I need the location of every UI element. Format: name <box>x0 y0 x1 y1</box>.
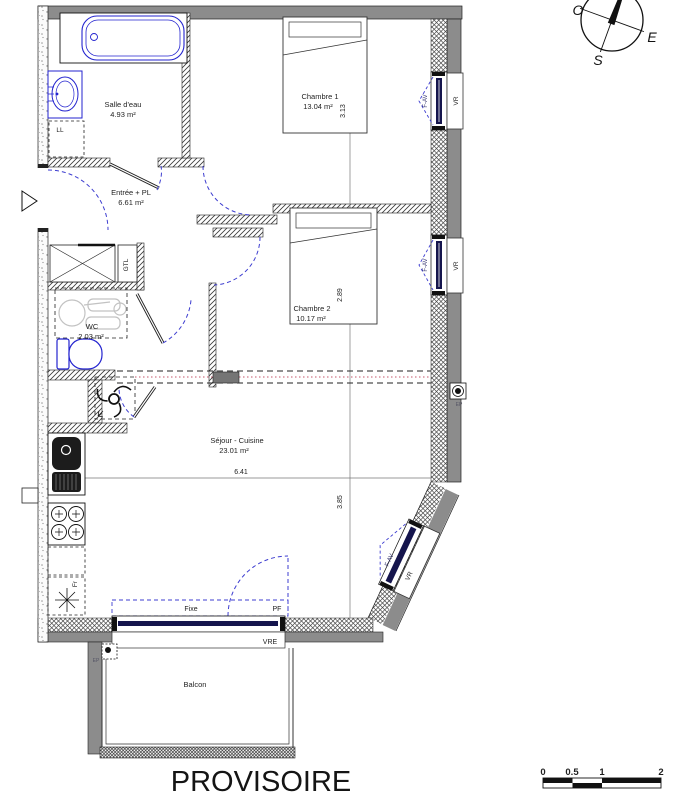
washing-machine-slot <box>49 121 84 157</box>
balcony <box>88 642 295 758</box>
room-label-entree: Entrée + PL <box>111 188 151 197</box>
wall-bathroom-south-right <box>158 158 204 167</box>
future-partition <box>117 371 431 383</box>
compass-rose: O E S <box>568 0 657 68</box>
wall-right-inner-1 <box>431 19 447 72</box>
label-fixe: Fixe <box>184 606 197 613</box>
toilet <box>57 339 102 369</box>
compass-west: O <box>573 2 584 18</box>
watermark-provisoire: PROVISOIRE <box>171 766 352 798</box>
label-fridge: Fr <box>72 580 79 587</box>
counter-dashed <box>48 547 85 575</box>
bed1-pillow <box>289 22 361 37</box>
door-swing-wc <box>163 300 191 343</box>
room-label-chambre2: Chambre 2 <box>293 304 330 313</box>
wall-right-inner-3 <box>431 295 447 482</box>
room-area-chambre1: 13.04 m² <box>303 102 333 111</box>
kitchen-stove <box>48 503 85 545</box>
rainwater-symbol-balcony <box>102 644 117 659</box>
kitchen-sink-unit <box>48 433 85 495</box>
wall-left <box>38 6 48 642</box>
compass-north-needle <box>608 0 628 25</box>
bay-swing-zone <box>112 600 288 616</box>
fan-hub <box>109 394 119 404</box>
bay-sill <box>112 632 285 648</box>
wall-chambre1-south-left <box>197 215 277 224</box>
bed-chambre1 <box>283 17 367 133</box>
label-vr-chambre1: VR <box>453 96 460 105</box>
entry-jamb-bottom <box>38 228 48 232</box>
room-area-entree: 6.61 m² <box>118 198 144 207</box>
room-label-balcon: Balcon <box>184 680 207 689</box>
scale-seg-3 <box>573 783 603 788</box>
scale-tick-05: 0.5 <box>565 767 579 778</box>
fan-blade-1 <box>114 386 131 392</box>
wall-wc-south <box>48 370 115 380</box>
label-vr-chambre2: VR <box>453 261 460 270</box>
toilet-tank <box>57 339 69 369</box>
door-leaf-wc <box>137 294 163 343</box>
bathtub-surround <box>60 13 187 63</box>
room-area-salle-deau: 4.93 m² <box>110 110 136 119</box>
compass-circle <box>581 0 643 51</box>
label-ep-balcony: EP <box>93 658 100 664</box>
label-gtl: GTL <box>123 258 130 271</box>
door-swing-entry <box>48 170 108 230</box>
fridge-slot-dashed <box>48 577 85 615</box>
room-label-wc: WC <box>86 322 99 331</box>
room-label-sejour: Séjour - Cuisine <box>210 436 263 445</box>
scale-tick-2: 2 <box>658 767 663 778</box>
scale-bar: 0 0.5 1 2 <box>540 767 663 788</box>
floor-plan-drawing: Salle d'eau 4.93 m² Entrée + PL 6.61 m² … <box>0 0 676 800</box>
sink-bowl <box>52 437 81 470</box>
room-label-salle-deau: Salle d'eau <box>105 100 142 109</box>
bed2-pillow <box>296 213 371 228</box>
door-swing-sejour <box>119 387 134 417</box>
room-area-chambre2: 10.17 m² <box>296 314 326 323</box>
balcony-railing-inner <box>106 648 289 744</box>
radiator-block <box>213 372 239 383</box>
label-fav-chambre1: F-AV <box>423 94 429 107</box>
room-area-sejour: 23.01 m² <box>219 446 249 455</box>
wall-chambre2-north <box>213 228 263 237</box>
dim-chambre1-depth: 3.13 <box>340 104 347 118</box>
compass-east: E <box>647 29 657 45</box>
wall-bathroom-south-left <box>48 158 110 167</box>
scale-tick-1: 1 <box>599 767 605 778</box>
compass-south: S <box>593 52 603 68</box>
wheelchair-wheel <box>59 300 85 326</box>
wall-bottom-inner-left <box>38 618 112 632</box>
entry-marker-triangle <box>22 191 37 211</box>
window-balcony-bay <box>112 600 288 648</box>
dim-sejour-width: 6.41 <box>234 469 248 476</box>
wall-closet-south <box>48 282 144 290</box>
door-leaf-sejour <box>134 387 155 417</box>
dim-chambre2-depth: 2.89 <box>337 288 344 302</box>
dim-sejour-depth: 3.85 <box>337 495 344 509</box>
star-rays <box>55 588 79 612</box>
room-area-wc: 2.03 m² <box>78 332 104 341</box>
label-washing-machine: LL <box>56 127 64 134</box>
window-sejour-diagonal <box>365 513 440 599</box>
wall-bottom-inner-right <box>285 618 373 632</box>
scale-seg-2 <box>602 778 661 783</box>
washbasin-drain <box>56 93 59 96</box>
rainwater-symbol-right <box>450 383 466 399</box>
entry-opening <box>37 168 49 228</box>
wall-right-inner-2 <box>431 130 447 235</box>
floor-plan-page: Salle d'eau 4.93 m² Entrée + PL 6.61 m² … <box>0 0 676 800</box>
toilet-bowl <box>69 339 102 369</box>
entry-jamb-top <box>38 164 48 168</box>
label-ep-right: EP <box>456 402 463 408</box>
label-vre: VRE <box>263 639 278 646</box>
wall-kitchen-north <box>48 423 127 433</box>
left-wall-vent <box>22 488 38 503</box>
label-pf: PF <box>273 606 282 613</box>
door-leaf-bathroom <box>110 164 159 188</box>
room-label-chambre1: Chambre 1 <box>301 92 338 101</box>
scale-tick-0: 0 <box>540 767 545 778</box>
washbasin <box>48 71 82 118</box>
fan-blade-3 <box>114 403 121 417</box>
wall-gtl-east <box>137 243 144 290</box>
scale-seg-1 <box>543 778 573 783</box>
balcony-railing-outer <box>102 648 293 748</box>
label-fav-chambre2: F-AV <box>423 258 429 271</box>
bathtub <box>60 13 187 63</box>
door-swing-chambre2 <box>214 237 260 285</box>
door-swing-chambre1 <box>203 166 252 215</box>
balcony-edge-hatch <box>100 747 295 758</box>
fridge-star-symbol <box>55 588 79 612</box>
closet <box>50 245 115 282</box>
